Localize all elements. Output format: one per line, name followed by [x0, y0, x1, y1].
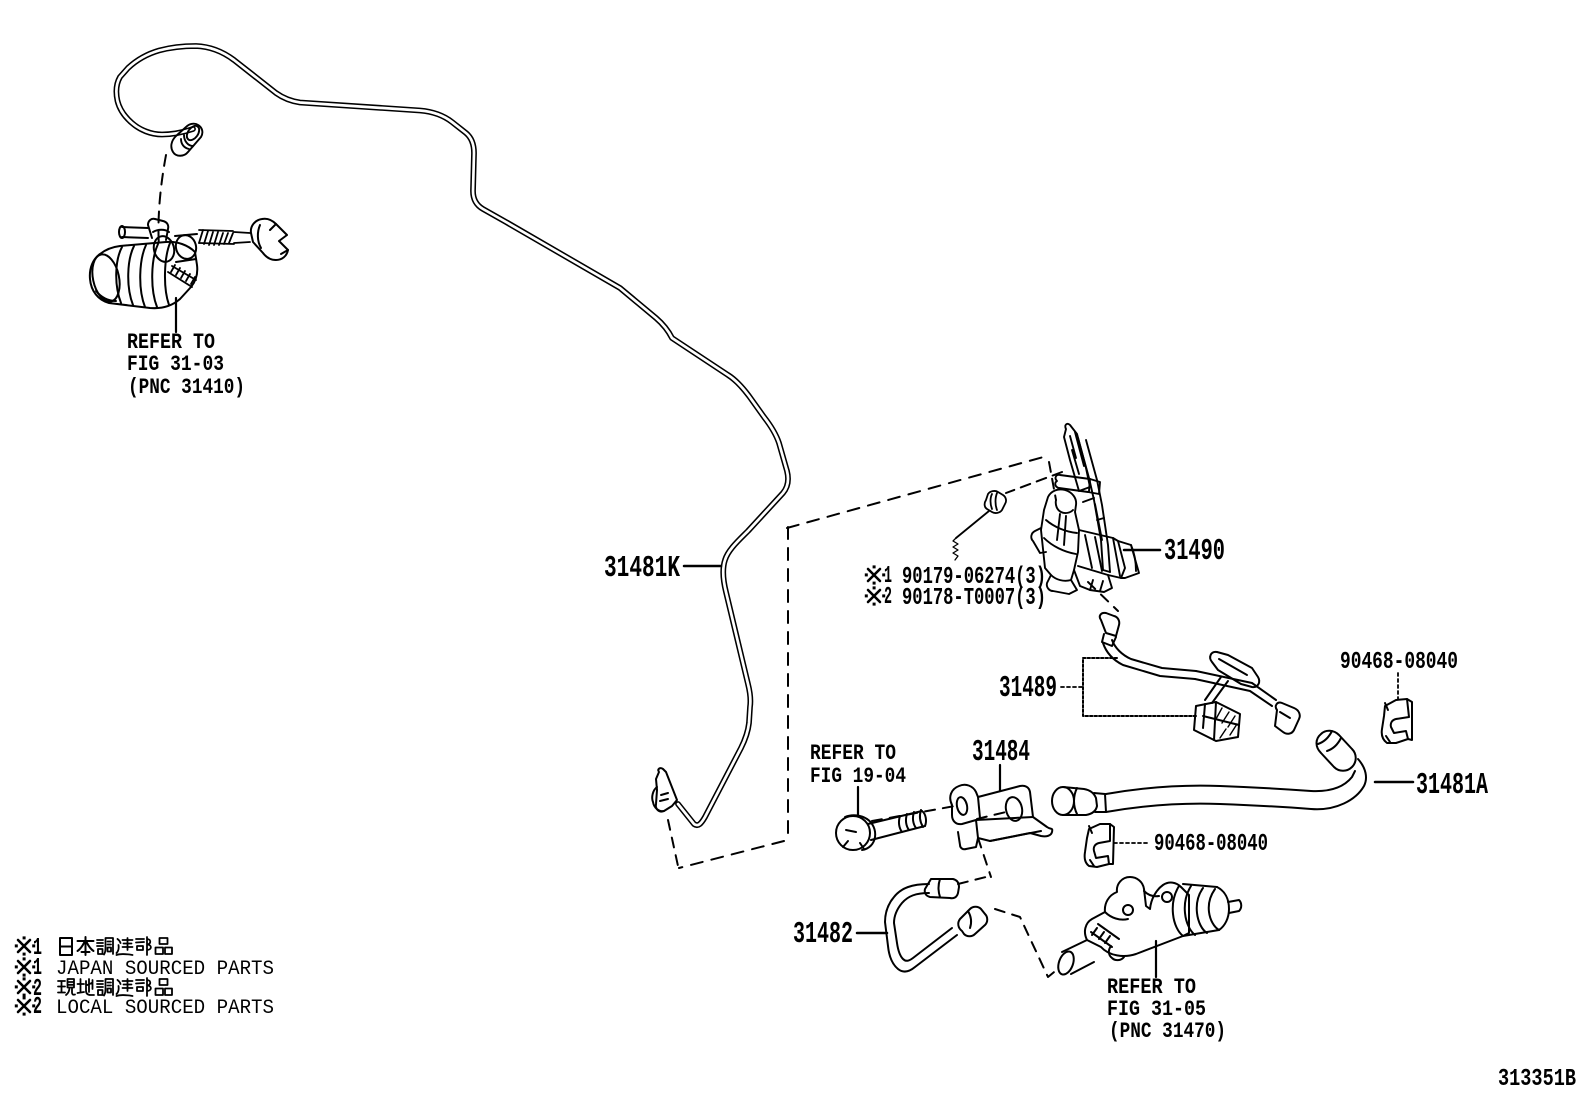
svg-text:31481A: 31481A	[1416, 768, 1488, 803]
svg-text:31490: 31490	[1164, 534, 1225, 569]
svg-text:90468-08040: 90468-08040	[1340, 649, 1458, 676]
svg-text:FIG 31-03: FIG 31-03	[127, 352, 224, 377]
svg-text:(PNC 31410): (PNC 31410)	[128, 375, 245, 400]
svg-text:FIG 19-04: FIG 19-04	[810, 764, 906, 789]
svg-text:2: 2	[884, 584, 892, 611]
svg-text:REFER TO: REFER TO	[810, 741, 896, 766]
svg-text:JAPAN SOURCED PARTS: JAPAN SOURCED PARTS	[56, 958, 274, 981]
svg-text:90468-08040: 90468-08040	[1154, 831, 1268, 858]
svg-text:(PNC 31470): (PNC 31470)	[1109, 1019, 1226, 1044]
svg-text:2: 2	[33, 994, 42, 1021]
svg-text:31481K: 31481K	[604, 551, 680, 586]
svg-text:90178-T0007(3): 90178-T0007(3)	[902, 585, 1046, 612]
svg-text:313351B: 313351B	[1498, 1066, 1576, 1093]
svg-text:LOCAL SOURCED PARTS: LOCAL SOURCED PARTS	[56, 997, 274, 1020]
svg-text:31489: 31489	[999, 671, 1057, 706]
svg-text:31482: 31482	[793, 917, 853, 952]
